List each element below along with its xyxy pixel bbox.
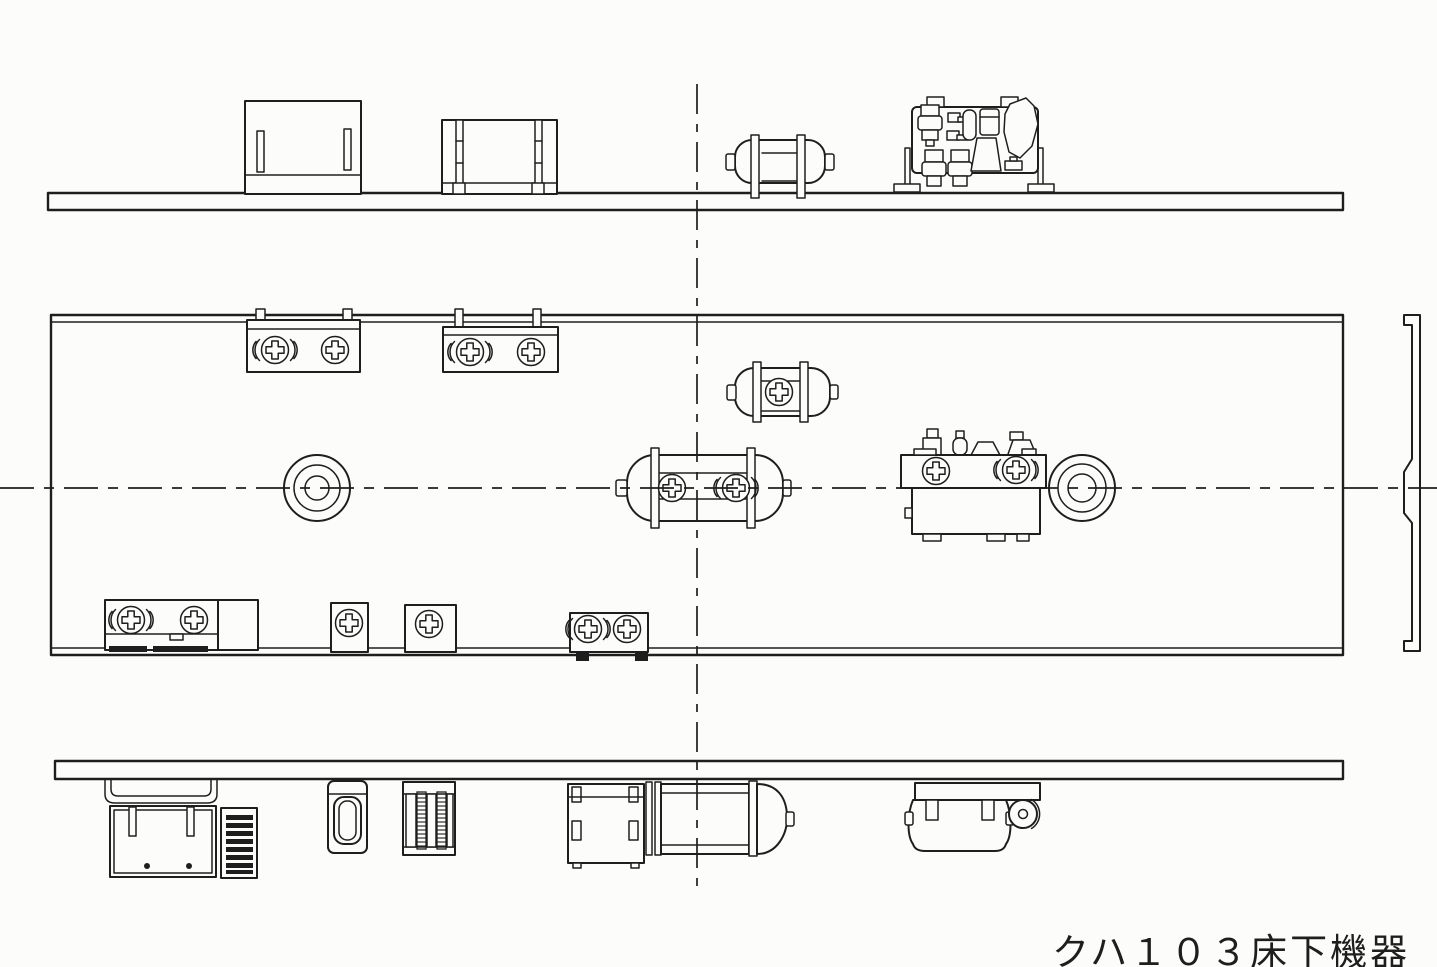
hanger-bracket bbox=[105, 780, 217, 803]
floor-bar bbox=[55, 761, 1343, 779]
equipment-box-a2 bbox=[442, 120, 557, 194]
pulley-wheel bbox=[1009, 800, 1037, 828]
resistor-unit bbox=[403, 782, 455, 855]
valve-box bbox=[328, 781, 367, 853]
plan-view bbox=[51, 309, 1420, 661]
terminal-box-d1 bbox=[105, 600, 258, 652]
funnel-fitting bbox=[971, 138, 1001, 171]
scanned-diagram-page: クハ１０３床下機器 bbox=[0, 0, 1437, 967]
side-view-b bbox=[55, 761, 1343, 878]
junction-box-b bbox=[568, 784, 644, 868]
air-reservoir-a bbox=[726, 135, 834, 198]
left-leg bbox=[905, 148, 910, 185]
mount-bracket bbox=[915, 783, 1040, 800]
brake-control-unit-a bbox=[894, 97, 1054, 192]
side-view-a bbox=[48, 97, 1343, 210]
battery-box bbox=[110, 806, 216, 877]
floor-bar bbox=[48, 193, 1343, 210]
air-reservoir-small bbox=[727, 362, 838, 422]
lower-body bbox=[912, 488, 1040, 534]
caption-title: クハ１０３床下機器 bbox=[1052, 922, 1432, 967]
compressor bbox=[905, 783, 1040, 851]
terminal-box-d2 bbox=[331, 603, 368, 652]
air-cylinder bbox=[646, 781, 794, 856]
terminal-box-d3 bbox=[405, 605, 456, 652]
equipment-box-a1 bbox=[245, 101, 361, 194]
louver-grid bbox=[221, 808, 257, 878]
end-beam-profile bbox=[1404, 315, 1420, 651]
tank-body bbox=[909, 800, 1011, 851]
underfloor-equipment-drawing bbox=[0, 0, 1437, 967]
